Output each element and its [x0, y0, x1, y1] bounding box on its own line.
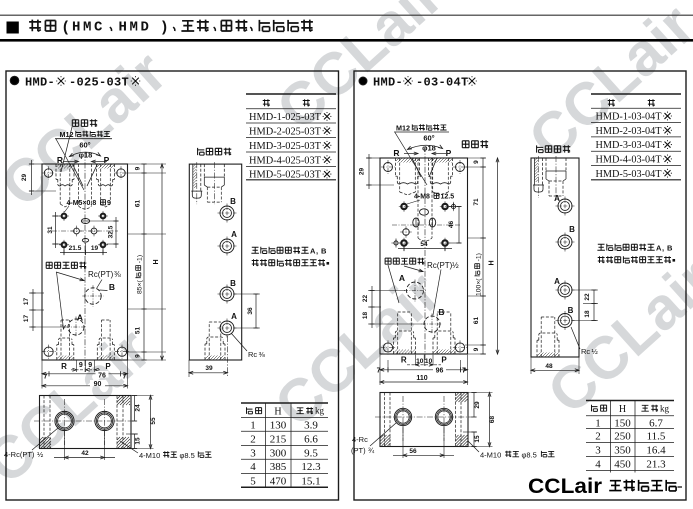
svg-text:9: 9 [135, 166, 142, 170]
svg-text:H: H [619, 404, 626, 415]
svg-text:R: R [61, 362, 67, 371]
svg-text:HMD-2-03-04T: HMD-2-03-04T [596, 126, 663, 137]
svg-text:M12: M12 [60, 130, 74, 139]
svg-text:2: 2 [250, 433, 256, 445]
svg-text:12.5: 12.5 [441, 194, 455, 201]
svg-text:½: ½ [37, 450, 44, 459]
svg-text:H: H [274, 407, 281, 418]
svg-text:2: 2 [595, 430, 601, 442]
svg-text:32.5: 32.5 [108, 225, 115, 238]
svg-text:HMD-4-025-03T: HMD-4-025-03T [249, 155, 322, 166]
svg-text:B: B [569, 225, 575, 234]
svg-text:90: 90 [94, 381, 102, 388]
svg-text:7: 7 [123, 373, 127, 380]
svg-text:φ8.5: φ8.5 [522, 451, 537, 460]
svg-text:9: 9 [135, 354, 142, 358]
svg-text:85×(: 85×( [137, 279, 144, 294]
svg-text:300: 300 [270, 448, 287, 460]
svg-text:B: B [438, 307, 444, 317]
svg-text:110: 110 [416, 375, 427, 382]
svg-text:Rc(PT): Rc(PT) [88, 270, 114, 279]
svg-text:5: 5 [250, 476, 256, 488]
svg-text:150: 150 [614, 418, 631, 430]
svg-text:11.5: 11.5 [647, 430, 666, 442]
svg-text:60°: 60° [423, 134, 434, 143]
svg-text:250: 250 [614, 430, 631, 442]
svg-text:4-M8: 4-M8 [414, 194, 430, 201]
svg-text:9: 9 [473, 347, 480, 351]
svg-text:HMD: HMD [119, 20, 152, 36]
svg-text:9: 9 [88, 362, 92, 369]
svg-text:B: B [230, 197, 236, 206]
svg-text:17: 17 [23, 315, 30, 323]
svg-text:HMC: HMC [72, 20, 105, 36]
svg-text:215: 215 [270, 433, 287, 445]
svg-text:51: 51 [135, 327, 142, 335]
svg-text:56: 56 [409, 448, 417, 455]
svg-text:100×(: 100×( [476, 278, 483, 296]
svg-text:10: 10 [416, 358, 424, 365]
svg-text:96: 96 [436, 367, 444, 374]
svg-text:HMD-2-025-03T: HMD-2-025-03T [249, 126, 322, 137]
svg-text:R: R [393, 148, 399, 158]
svg-text:54: 54 [420, 241, 428, 248]
svg-text:kg: kg [315, 406, 325, 416]
svg-text:Rc: Rc [248, 350, 257, 359]
svg-text:CCLair: CCLair [528, 474, 603, 498]
svg-text:HMD-: HMD- [25, 76, 55, 90]
svg-text:H: H [153, 259, 160, 264]
svg-text:61: 61 [135, 200, 142, 208]
svg-text:4-Rc: 4-Rc [352, 435, 368, 444]
svg-text:4-M10: 4-M10 [480, 451, 501, 460]
svg-text:R: R [57, 155, 63, 165]
svg-text:470: 470 [270, 476, 287, 488]
svg-text:15.1: 15.1 [301, 476, 320, 488]
svg-text:48: 48 [545, 363, 553, 370]
svg-text:3.9: 3.9 [304, 420, 318, 432]
svg-text:15: 15 [474, 435, 481, 443]
svg-text:P: P [105, 362, 111, 371]
svg-text:3: 3 [250, 448, 256, 460]
svg-text:-025-03T: -025-03T [69, 76, 129, 90]
svg-text:): ) [162, 19, 167, 36]
svg-text:kg: kg [660, 404, 670, 414]
svg-text:A: A [231, 312, 237, 321]
svg-text:9: 9 [79, 362, 83, 369]
svg-text:1: 1 [250, 420, 256, 432]
svg-text:17: 17 [23, 298, 30, 306]
svg-text:Rc(PT): Rc(PT) [427, 261, 453, 270]
svg-text:31: 31 [47, 226, 54, 234]
svg-text:76: 76 [98, 372, 106, 379]
svg-text:-1): -1) [476, 253, 483, 261]
svg-text:4-Rc(PT): 4-Rc(PT) [4, 450, 35, 459]
svg-text:φ18: φ18 [79, 151, 93, 160]
svg-text:HMD-1-03-04T: HMD-1-03-04T [596, 112, 663, 123]
svg-text:HMD-1-025-03T: HMD-1-025-03T [249, 112, 322, 123]
svg-text:⅜: ⅜ [259, 350, 266, 359]
svg-text:HMD-5-03-04T: HMD-5-03-04T [596, 169, 663, 180]
svg-text:¾: ¾ [368, 446, 375, 455]
svg-text:29: 29 [474, 401, 481, 409]
svg-text:18: 18 [584, 310, 591, 318]
svg-text:B: B [230, 279, 236, 288]
svg-text:9.5: 9.5 [304, 448, 318, 460]
svg-text:16.4: 16.4 [646, 444, 666, 456]
svg-text:A: A [554, 194, 560, 203]
svg-text:130: 130 [270, 420, 287, 432]
svg-text:φ18: φ18 [422, 144, 436, 153]
svg-text:R: R [401, 356, 407, 365]
svg-text:29: 29 [21, 174, 28, 182]
svg-text:-03-04T: -03-04T [416, 76, 469, 90]
svg-text:350: 350 [614, 444, 631, 456]
svg-text:Rc: Rc [581, 347, 590, 356]
svg-text:M12: M12 [396, 124, 410, 133]
svg-text:61: 61 [473, 317, 480, 325]
svg-text:42: 42 [81, 450, 89, 457]
svg-text:-1): -1) [137, 255, 144, 263]
svg-text:29: 29 [359, 168, 366, 176]
svg-text:22: 22 [362, 295, 369, 303]
svg-text:71: 71 [473, 198, 480, 206]
svg-text:450: 450 [614, 458, 631, 470]
svg-text:6.7: 6.7 [649, 418, 663, 430]
svg-text:15: 15 [135, 437, 142, 445]
svg-text:HMD-3-025-03T: HMD-3-025-03T [249, 141, 322, 152]
svg-text:68: 68 [489, 416, 496, 424]
svg-text:12.3: 12.3 [301, 461, 321, 473]
svg-text:18: 18 [362, 312, 369, 320]
svg-text:7: 7 [44, 373, 48, 380]
svg-text:B: B [321, 247, 327, 256]
svg-text:4-M5×0.8: 4-M5×0.8 [67, 200, 97, 207]
svg-text:4-M10: 4-M10 [139, 451, 160, 460]
svg-text:55: 55 [150, 417, 157, 425]
svg-text:A: A [399, 273, 405, 283]
svg-text:(PT): (PT) [351, 446, 366, 455]
svg-text:1: 1 [595, 418, 601, 430]
svg-text:4: 4 [250, 461, 256, 473]
svg-text:P: P [104, 155, 110, 165]
svg-text:6.6: 6.6 [304, 433, 318, 445]
svg-text:⅜: ⅜ [114, 270, 121, 279]
svg-text:P: P [446, 148, 452, 158]
svg-text:,: , [316, 247, 318, 256]
svg-text:22: 22 [584, 293, 591, 301]
svg-text:60°: 60° [79, 141, 90, 150]
svg-text:P: P [441, 356, 447, 365]
svg-text:HMD-3-03-04T: HMD-3-03-04T [596, 140, 663, 151]
svg-text:(: ( [63, 19, 68, 36]
svg-text:A: A [77, 313, 83, 323]
svg-text:B: B [568, 306, 574, 315]
svg-text:HMD-4-03-04T: HMD-4-03-04T [596, 155, 663, 166]
svg-text:7: 7 [462, 368, 466, 375]
svg-text:½: ½ [452, 261, 459, 270]
svg-text:A: A [554, 277, 560, 286]
svg-text:10: 10 [425, 358, 433, 365]
svg-text:39: 39 [205, 365, 213, 372]
svg-text:φ8.5: φ8.5 [180, 451, 195, 460]
svg-text:21.5: 21.5 [69, 245, 82, 252]
svg-text:36: 36 [247, 307, 254, 315]
svg-text:385: 385 [270, 461, 287, 473]
svg-text:19: 19 [91, 245, 99, 252]
svg-text:24: 24 [135, 404, 142, 412]
svg-text:HMD-: HMD- [373, 76, 403, 90]
svg-text:½: ½ [592, 347, 599, 356]
svg-text:46: 46 [448, 221, 455, 229]
svg-text:9: 9 [107, 200, 111, 207]
svg-text:9: 9 [473, 160, 480, 164]
svg-text:HMD-5-025-03T: HMD-5-025-03T [249, 170, 322, 181]
svg-text:4: 4 [595, 458, 601, 470]
svg-text:H: H [489, 260, 496, 265]
svg-text:A: A [231, 230, 237, 239]
svg-text:B: B [667, 244, 673, 253]
svg-text:B: B [109, 282, 115, 292]
svg-text:3: 3 [595, 444, 601, 456]
svg-text:,: , [662, 244, 664, 253]
svg-text:21.3: 21.3 [646, 458, 666, 470]
